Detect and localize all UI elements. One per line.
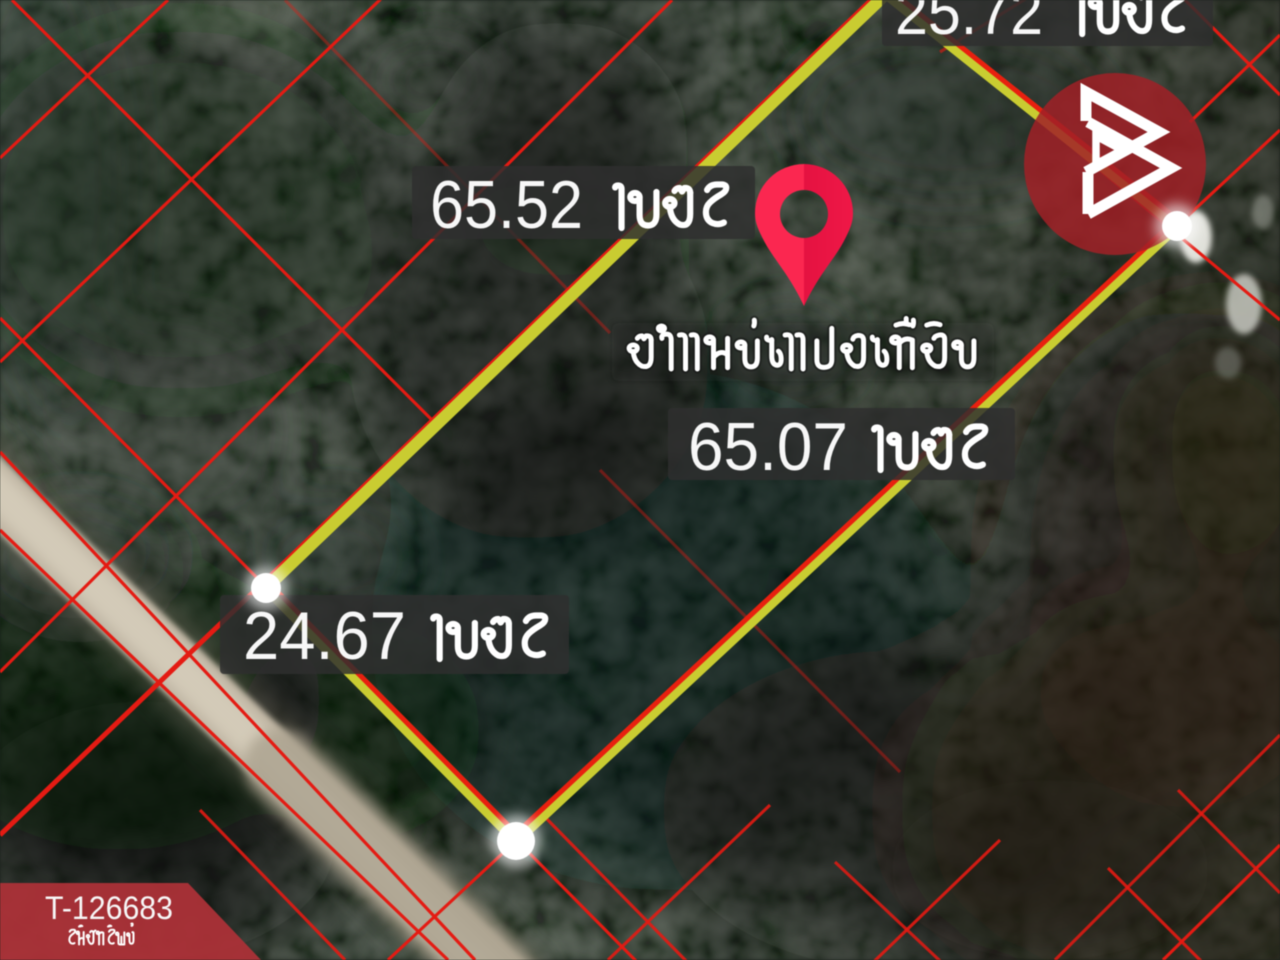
svg-text:25.72: 25.72: [895, 0, 1043, 48]
svg-text:65.52: 65.52: [430, 167, 583, 243]
svg-text:T-126683: T-126683: [45, 890, 173, 926]
svg-text:65.07: 65.07: [688, 409, 848, 485]
